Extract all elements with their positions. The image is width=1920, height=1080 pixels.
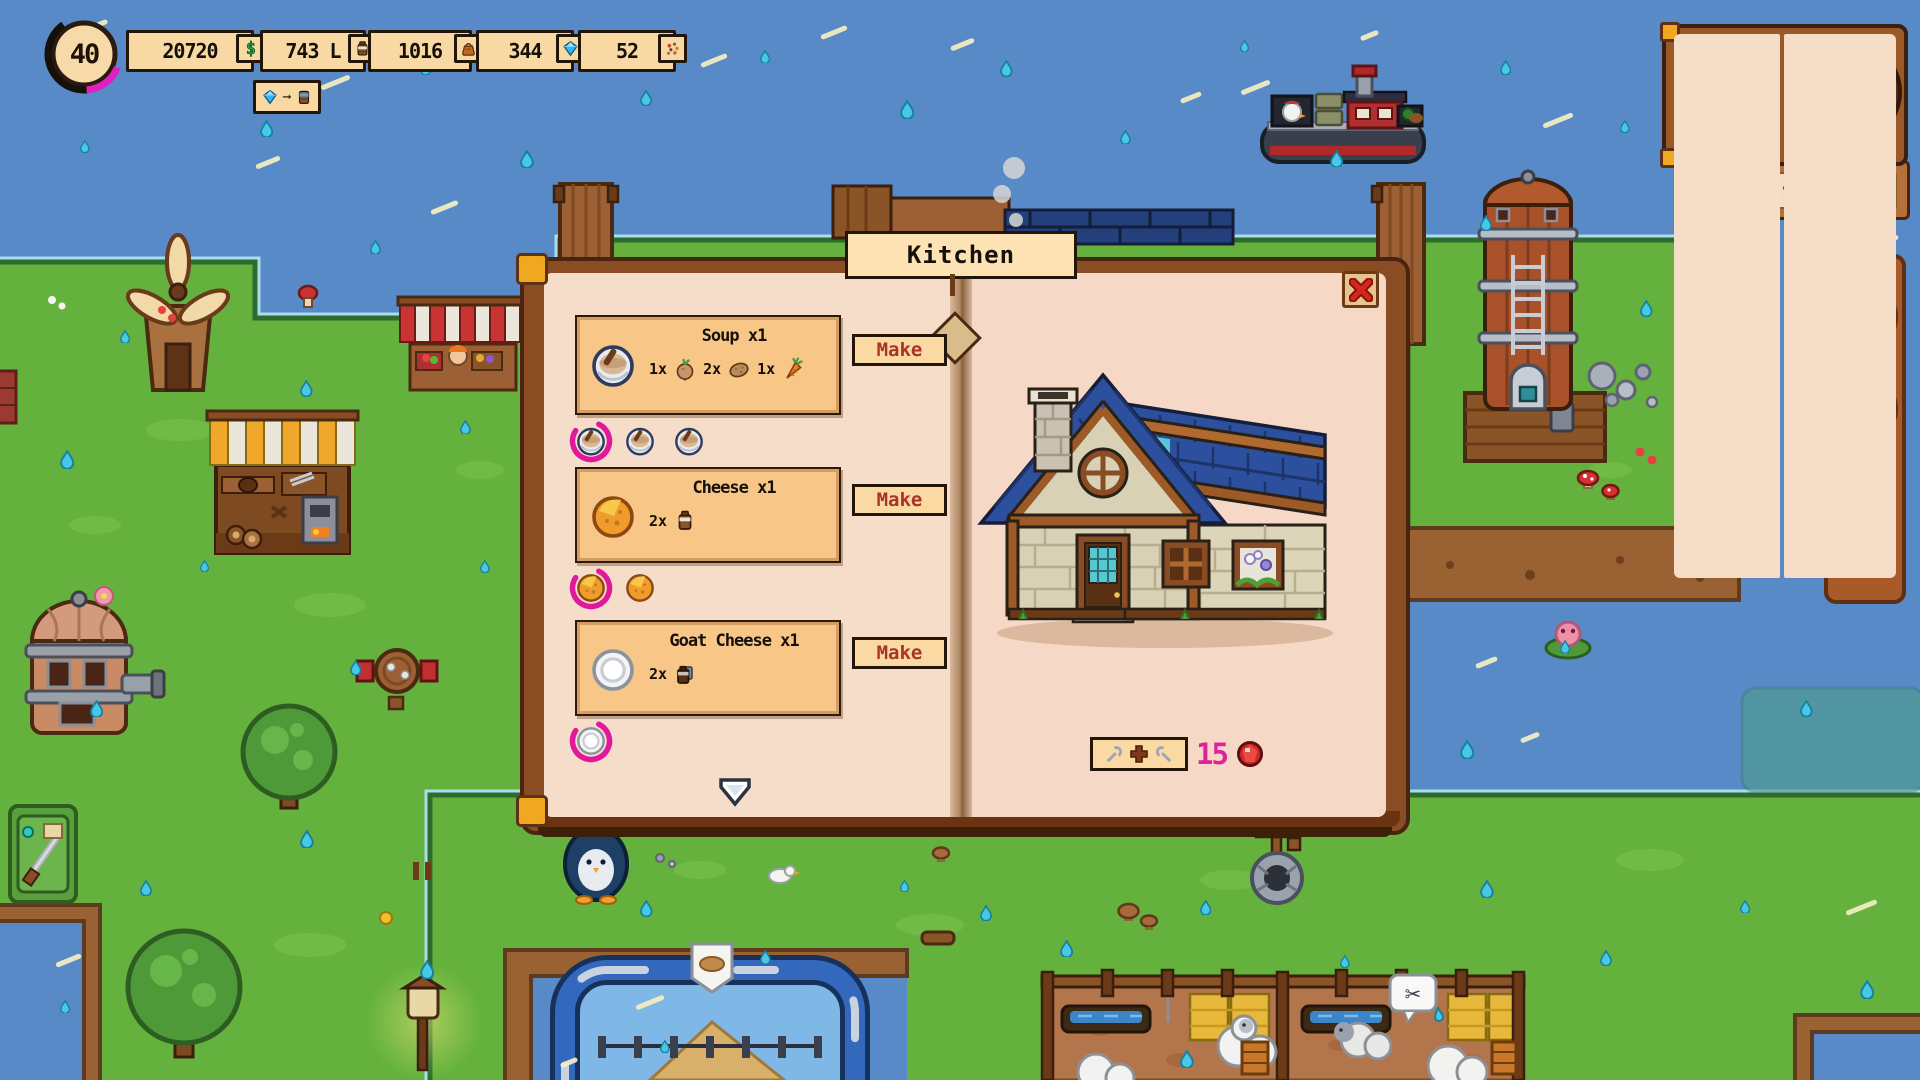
- svg-text:✂: ✂: [1405, 982, 1422, 1006]
- book-corner-ornament: [516, 253, 548, 285]
- market-stall: [398, 297, 522, 390]
- well: [1252, 826, 1302, 903]
- conversion-indicator: ➞: [253, 80, 321, 114]
- duck-pen: [565, 944, 855, 1080]
- resource-gems: 344: [476, 30, 574, 72]
- craft-progress-ring: [568, 718, 614, 764]
- calendar-left-page: [1674, 34, 1780, 578]
- craft-progress-ring: [568, 565, 614, 611]
- brick-wall-fragment: [0, 371, 16, 423]
- soup-bowl-icon: [589, 341, 637, 389]
- wrench-icon: [1105, 745, 1123, 763]
- recipe-card-cheese[interactable]: Cheese x1 2x: [575, 467, 841, 563]
- close-icon: [1349, 278, 1373, 302]
- resource-milk: 743 L: [260, 30, 366, 72]
- diamond-icon: [261, 88, 279, 106]
- book-shadow-edge: [538, 827, 1392, 837]
- chevron-down-icon: [718, 777, 752, 807]
- recipe-name: Soup x1: [637, 326, 831, 346]
- svg-text:$: $: [246, 39, 255, 58]
- upgrade-button[interactable]: [1090, 737, 1188, 771]
- queued-goat-cheese-wheel-icon[interactable]: [575, 725, 607, 757]
- craft-queue-cheese: [575, 572, 656, 604]
- water-tank-icon: [295, 88, 313, 106]
- seeds-icon: [658, 34, 687, 63]
- level-badge: 40: [44, 14, 124, 94]
- ingredient-qty: 1x: [649, 360, 667, 378]
- ingredient-list: 1x2x1x: [649, 357, 805, 381]
- level-number: 40: [44, 14, 124, 94]
- game-viewport: ✂: [0, 0, 1920, 1080]
- wrench-icon: [1155, 745, 1173, 763]
- queued-soup-bowl-icon[interactable]: [575, 425, 607, 457]
- make-button-soup[interactable]: Make: [852, 334, 947, 366]
- craft-queue-goat-cheese: [575, 725, 607, 757]
- goat-cheese-wheel-icon: [589, 646, 637, 694]
- log: [922, 932, 954, 944]
- goat-milk-icon: [673, 662, 697, 686]
- upgrade-row: 15: [1090, 737, 1265, 771]
- book-title: Kitchen: [907, 241, 1015, 269]
- submerged-grass: [1742, 688, 1920, 792]
- ingredient-qty: 2x: [649, 512, 667, 530]
- plus-icon: [1129, 744, 1149, 764]
- craft-queue-soup: [575, 425, 705, 457]
- upgrade-cost: 15: [1196, 737, 1227, 771]
- craft-progress-ring: [568, 418, 614, 464]
- scroll-down-arrow[interactable]: [718, 777, 752, 807]
- sheep-pens: ✂: [1042, 970, 1524, 1080]
- kitchen-house-illustration: [975, 357, 1357, 659]
- pond-bottom-left: [0, 905, 100, 1080]
- arrow-right-icon: ➞: [282, 88, 291, 106]
- carrot-icon: [781, 357, 805, 381]
- pond-bottom-right: [1795, 1015, 1920, 1080]
- calendar-panel: Tuesday 1st day of 2nd Spring 12 3 6 9: [1662, 24, 1908, 166]
- ingredient-list: 2x: [649, 509, 697, 533]
- book-corner-ornament: [516, 795, 548, 827]
- ingredient-list: 2x: [649, 662, 697, 686]
- ingredient-qty: 2x: [649, 665, 667, 683]
- workshop-stall: [207, 411, 358, 553]
- resource-feed: 1016: [368, 30, 472, 72]
- queued-cheese-wheel-icon[interactable]: [624, 572, 656, 604]
- queued-cheese-wheel-icon[interactable]: [575, 572, 607, 604]
- adventure-crate: [10, 806, 76, 902]
- recipe-card-soup[interactable]: Soup x1 1x2x1x: [575, 315, 841, 415]
- resource-seeds: 52: [578, 30, 676, 72]
- recipe-name: Cheese x1: [637, 478, 831, 498]
- book-title-banner: Kitchen: [845, 231, 1077, 279]
- queued-soup-bowl-icon[interactable]: [624, 425, 656, 457]
- ingredient-qty: 2x: [703, 360, 721, 378]
- make-button-goat-cheese[interactable]: Make: [852, 637, 947, 669]
- queued-soup-bowl-icon[interactable]: [673, 425, 705, 457]
- ingredient-qty: 1x: [757, 360, 775, 378]
- make-button-cheese[interactable]: Make: [852, 484, 947, 516]
- close-button[interactable]: [1342, 271, 1379, 308]
- calendar-right-page: [1784, 34, 1896, 578]
- potato-icon: [727, 357, 751, 381]
- recipe-card-goat-cheese[interactable]: Goat Cheese x1 2x: [575, 620, 841, 716]
- recipe-name: Goat Cheese x1: [637, 631, 831, 651]
- street-lamp: [366, 964, 482, 1080]
- cheese-wheel-icon: [589, 493, 637, 541]
- milk-icon: [673, 509, 697, 533]
- kitchen-crafting-book: Kitchen Soup x1 1x2x1x Make Cheese x1 2x…: [520, 257, 1410, 835]
- turnip-icon: [673, 357, 697, 381]
- resource-money: 20720 $: [126, 30, 254, 72]
- red-gem-icon: [1235, 739, 1265, 769]
- banner-pole: [950, 274, 955, 296]
